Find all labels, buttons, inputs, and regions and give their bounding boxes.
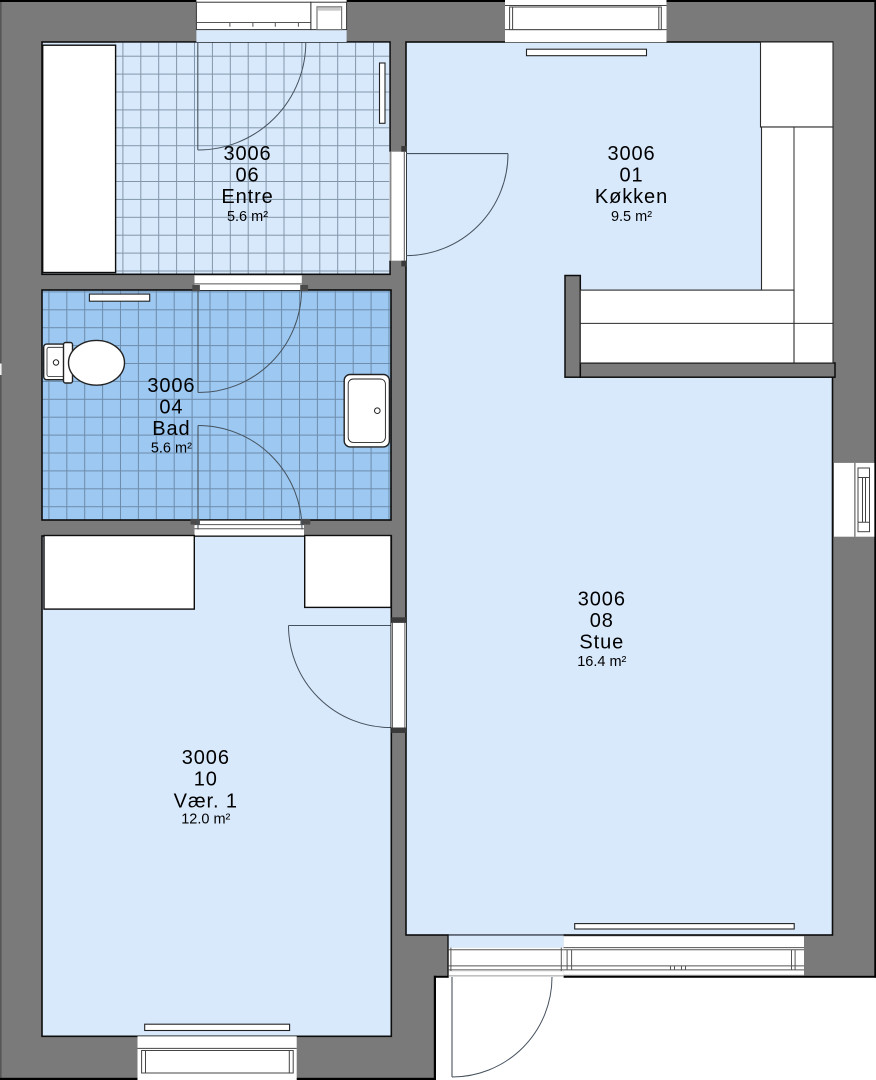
svg-text:Stue: Stue [579, 632, 624, 654]
svg-text:10: 10 [194, 769, 218, 791]
svg-text:04: 04 [159, 397, 183, 419]
svg-text:3006: 3006 [607, 143, 655, 165]
svg-text:3006: 3006 [223, 143, 271, 165]
svg-text:Bad: Bad [152, 418, 190, 440]
svg-text:Køkken: Køkken [595, 186, 668, 208]
svg-text:3006: 3006 [578, 589, 626, 611]
svg-text:12.0 m²: 12.0 m² [181, 812, 230, 828]
svg-text:Vær. 1: Vær. 1 [174, 791, 238, 813]
svg-text:06: 06 [235, 165, 259, 187]
svg-text:5.6 m²: 5.6 m² [227, 209, 268, 225]
svg-text:Entre: Entre [221, 186, 273, 208]
svg-text:3006: 3006 [147, 375, 195, 397]
svg-text:01: 01 [619, 165, 643, 187]
svg-text:9.5 m²: 9.5 m² [611, 209, 652, 225]
svg-text:16.4 m²: 16.4 m² [577, 654, 626, 670]
svg-text:08: 08 [590, 610, 614, 632]
svg-text:5.6 m²: 5.6 m² [151, 441, 192, 457]
svg-text:3006: 3006 [182, 747, 230, 769]
